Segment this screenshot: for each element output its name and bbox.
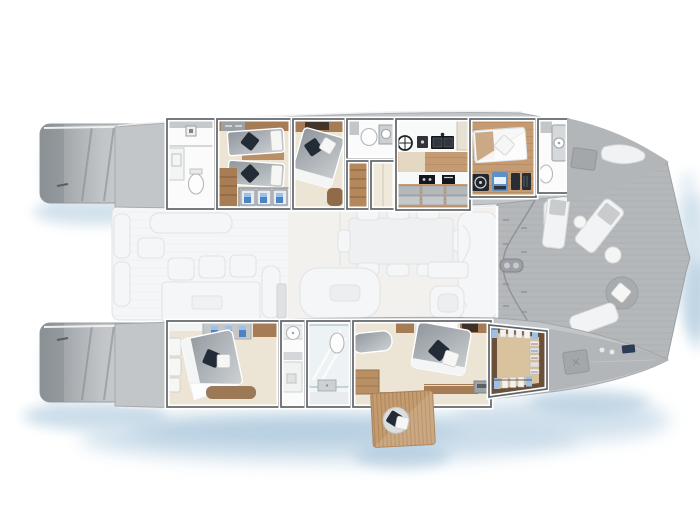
deck-hatch	[571, 147, 598, 170]
shower-room	[307, 321, 351, 407]
vanity-sink-icon	[540, 121, 552, 133]
vanity-sink-icon	[349, 121, 359, 135]
side-table	[605, 247, 621, 263]
aft-guest-cabin	[167, 321, 279, 407]
deck-hatch	[563, 349, 590, 374]
headboard-cushion	[169, 378, 180, 392]
fold-down-terrace	[371, 390, 436, 447]
chaise-lounge	[351, 330, 393, 354]
dining-table	[349, 218, 453, 264]
headboard-cushion	[169, 338, 181, 356]
oven-icon	[442, 175, 455, 184]
mid-bathroom	[347, 119, 395, 159]
cockpit-chair	[138, 238, 164, 258]
cooktop-icon	[419, 175, 435, 184]
walk-in-closet	[489, 325, 547, 397]
toilet-icon	[540, 165, 553, 183]
transom-bench	[114, 262, 130, 306]
side-table	[574, 216, 586, 228]
mast	[277, 284, 286, 318]
forward-cabin	[470, 119, 536, 197]
cleat	[600, 348, 605, 353]
desk	[353, 370, 379, 394]
guest-bathroom	[281, 321, 305, 407]
twin-bed-1	[227, 128, 285, 156]
cleat	[610, 350, 615, 355]
toilet-icon	[361, 129, 377, 146]
headboard-cushion	[169, 358, 181, 376]
companionway-stairs	[347, 161, 369, 209]
main-deck-faded	[112, 206, 497, 322]
bench-cabinet	[206, 386, 256, 399]
owner-bed	[411, 322, 472, 377]
windlass	[500, 259, 523, 272]
drain-icon	[287, 374, 296, 383]
washer-dryer-units	[472, 172, 531, 191]
folded-clothes-shelf	[530, 341, 539, 374]
port-hull	[40, 112, 668, 210]
twin-guest-cabin	[217, 119, 291, 209]
bow-fitting	[622, 344, 636, 353]
aft-bathroom	[167, 119, 215, 209]
transom-bench	[114, 214, 130, 258]
forward-bathroom	[538, 119, 568, 193]
helm-console	[428, 262, 468, 278]
forward-bed	[473, 127, 527, 163]
catamaran-deck-plan	[0, 0, 700, 525]
corner-cabinet	[327, 188, 343, 206]
cockpit-chair	[168, 258, 194, 280]
cockpit-sofa	[150, 213, 232, 233]
hall-closet	[371, 161, 395, 209]
vanity-sink-icon	[169, 148, 184, 180]
vip-guest-cabin	[290, 119, 345, 209]
cabin-stairs	[219, 168, 237, 206]
cockpit-chair	[199, 256, 225, 278]
vent-fan-icon	[398, 136, 412, 150]
toilet-icon	[189, 174, 204, 194]
galley	[396, 119, 470, 210]
toilet-icon	[330, 333, 344, 353]
wardrobe	[239, 188, 289, 207]
cockpit-chair	[230, 255, 256, 277]
deck-plan-page	[0, 0, 700, 525]
